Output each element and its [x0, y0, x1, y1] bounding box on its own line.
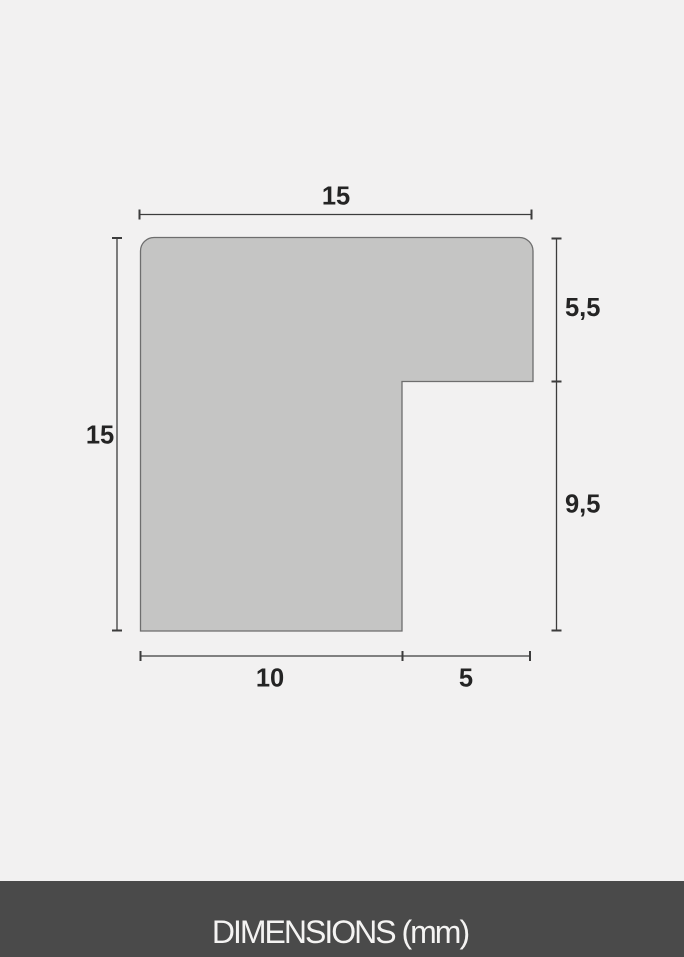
svg-text:9,5: 9,5 — [565, 491, 600, 519]
svg-text:5,5: 5,5 — [565, 294, 600, 322]
svg-text:15: 15 — [322, 183, 350, 211]
svg-text:DIMENSIONS (mm): DIMENSIONS (mm) — [212, 914, 469, 950]
svg-text:5: 5 — [459, 665, 473, 693]
svg-text:15: 15 — [86, 422, 114, 450]
svg-text:10: 10 — [256, 665, 284, 693]
